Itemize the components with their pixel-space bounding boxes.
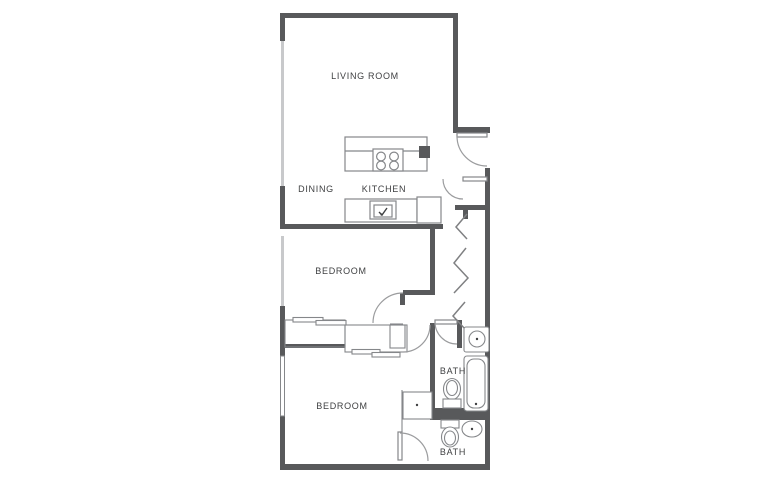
window-bedroom-2 xyxy=(281,356,285,416)
hall-closet-door xyxy=(443,177,487,199)
sliding-door-icon xyxy=(352,350,400,358)
room-label-bath-1: BATH xyxy=(440,365,466,377)
room-label-bedroom-1: BEDROOM xyxy=(315,265,366,277)
room-label-kitchen: KITCHEN xyxy=(362,183,406,195)
entry-door xyxy=(457,133,487,166)
kitchen-counter xyxy=(345,197,441,223)
sliding-door-icon xyxy=(293,318,346,326)
sink-icon xyxy=(462,421,482,437)
cabinet-icon xyxy=(402,390,432,432)
window-living-room xyxy=(281,41,284,186)
kitchen-island xyxy=(345,137,430,171)
stove-icon xyxy=(373,149,403,171)
bifold-closet-doors-icon xyxy=(453,214,468,329)
bath-1-door xyxy=(435,320,457,344)
island-end-cap xyxy=(419,146,430,158)
bathtub-icon xyxy=(464,356,488,411)
closet-bedroom-2 xyxy=(345,325,407,357)
toilet-icon xyxy=(441,420,459,447)
window-bedroom-1 xyxy=(281,236,284,306)
room-label-bedroom-2: BEDROOM xyxy=(316,400,367,412)
floor-plan: LIVING ROOM DINING KITCHEN BEDROOM BEDRO… xyxy=(0,0,768,480)
closets xyxy=(285,318,407,358)
room-label-bath-2: BATH xyxy=(440,446,466,458)
kitchen-sink-icon xyxy=(370,201,396,219)
closet-bedroom-1 xyxy=(285,318,346,348)
vanity-sink-icon xyxy=(464,327,489,352)
room-label-dining: DINING xyxy=(298,183,334,195)
door-jamb xyxy=(390,325,405,348)
room-label-living-room: LIVING ROOM xyxy=(331,70,399,82)
bedroom-2-door xyxy=(398,432,428,461)
refrigerator-icon xyxy=(417,197,441,223)
toilet-icon xyxy=(443,379,461,409)
